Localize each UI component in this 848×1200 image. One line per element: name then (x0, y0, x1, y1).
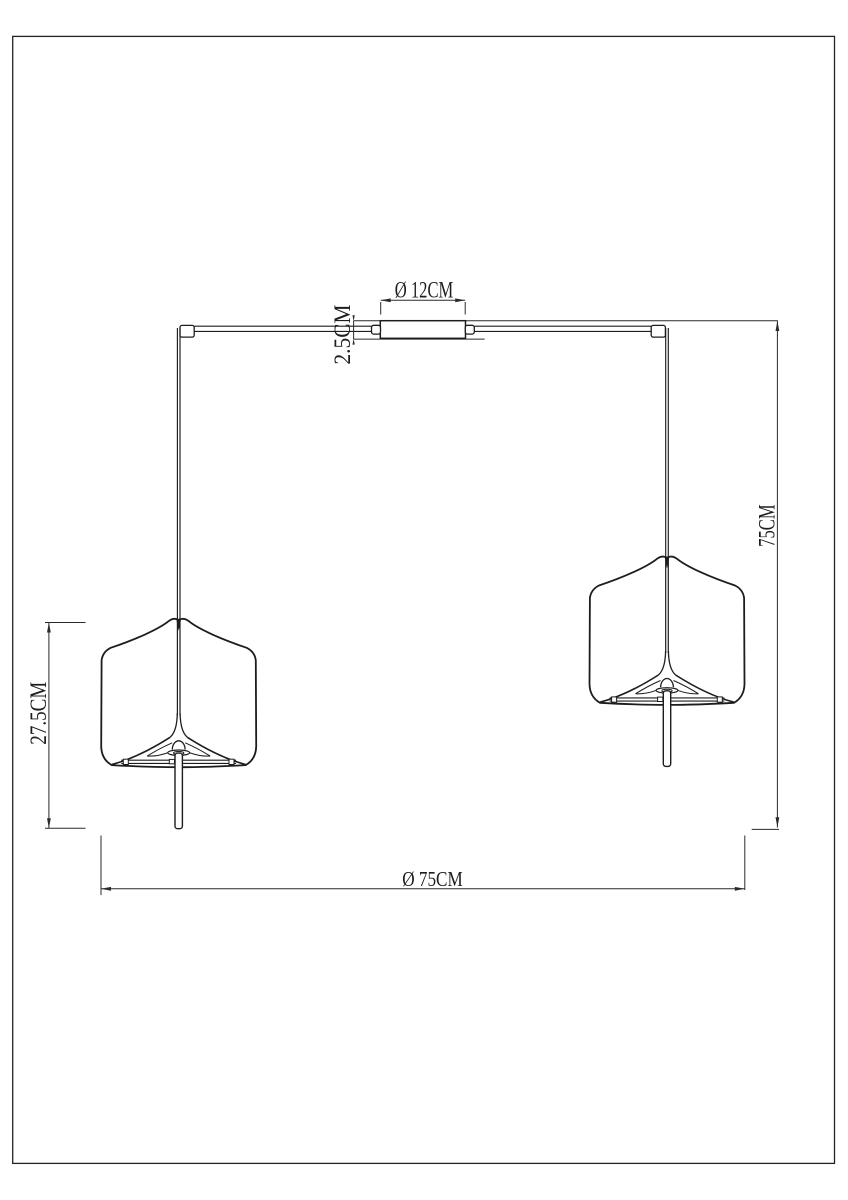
svg-text:Ø 75CM: Ø 75CM (402, 867, 463, 891)
svg-text:75CM: 75CM (754, 504, 779, 547)
svg-text:27.5CM: 27.5CM (26, 682, 51, 745)
svg-text:Ø 12CM: Ø 12CM (395, 278, 454, 303)
svg-text:2.5CM: 2.5CM (330, 305, 355, 365)
